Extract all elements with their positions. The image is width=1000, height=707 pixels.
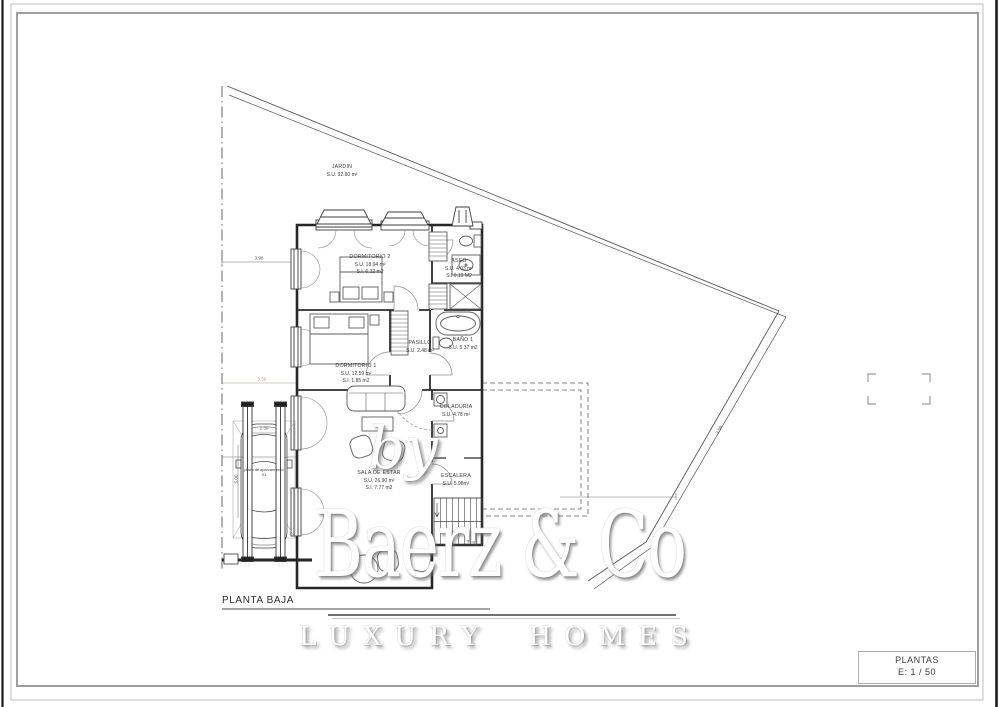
- registration-marks: [868, 374, 930, 404]
- room-label-pasillo: PASILLO S.U. 2.48 m²: [406, 340, 434, 355]
- plan-title: PLANTA BAJA: [222, 595, 294, 606]
- room-label-escalera: ESCALERA S.U. 5.98m²: [441, 473, 471, 488]
- room-label-dormitorio-1: DORMITORIO 1 S.U. 12.59 m² S.I. 1.85 m2: [335, 363, 376, 385]
- terrace-dashed-outline: [482, 383, 588, 516]
- floor-plan-sheet: by Baerz & Co LUXURY HOMES JARDIN S.U. 9…: [0, 0, 1000, 707]
- title-block: PLANTAS E: 1 / 50: [858, 651, 976, 684]
- room-label-sala-de-estar: SALA DE ESTAR S.U. 26.90 m² S.I. 7.77 m2: [357, 470, 400, 492]
- room-label-jardin: JARDIN S.U. 92.60 m²: [327, 164, 358, 179]
- dimension-350: 3.50: [258, 377, 267, 382]
- room-label-aseo: ASEO S.U. 4.03 m² S.I 0.19 M2: [445, 258, 473, 280]
- dimension-500: 5.00: [234, 475, 239, 484]
- sheet-frame: [11, 4, 983, 700]
- plot-boundary: [222, 86, 786, 589]
- room-label-coladuria: COLADURIA S.U. 4.78 m²: [440, 404, 473, 419]
- dimension-398: 3.98: [255, 256, 264, 261]
- title-block-name: PLANTAS: [859, 654, 975, 666]
- room-label-dormitorio-2: DORMITORIO 2 S.U. 18.94 m² S.I. 6.32 m2: [349, 254, 390, 276]
- stairs: [434, 498, 482, 545]
- dimension-230: 2.30: [260, 426, 269, 431]
- parking-space-label: plaza de aparcamiento 01: [244, 467, 283, 477]
- room-label-banio-1: BAÑO 1 S.U. 5.37 m2: [448, 337, 477, 352]
- photo-edge-lines: [3, 0, 997, 707]
- title-block-scale: E: 1 / 50: [859, 666, 975, 678]
- floor-plan-drawing: [0, 0, 1000, 707]
